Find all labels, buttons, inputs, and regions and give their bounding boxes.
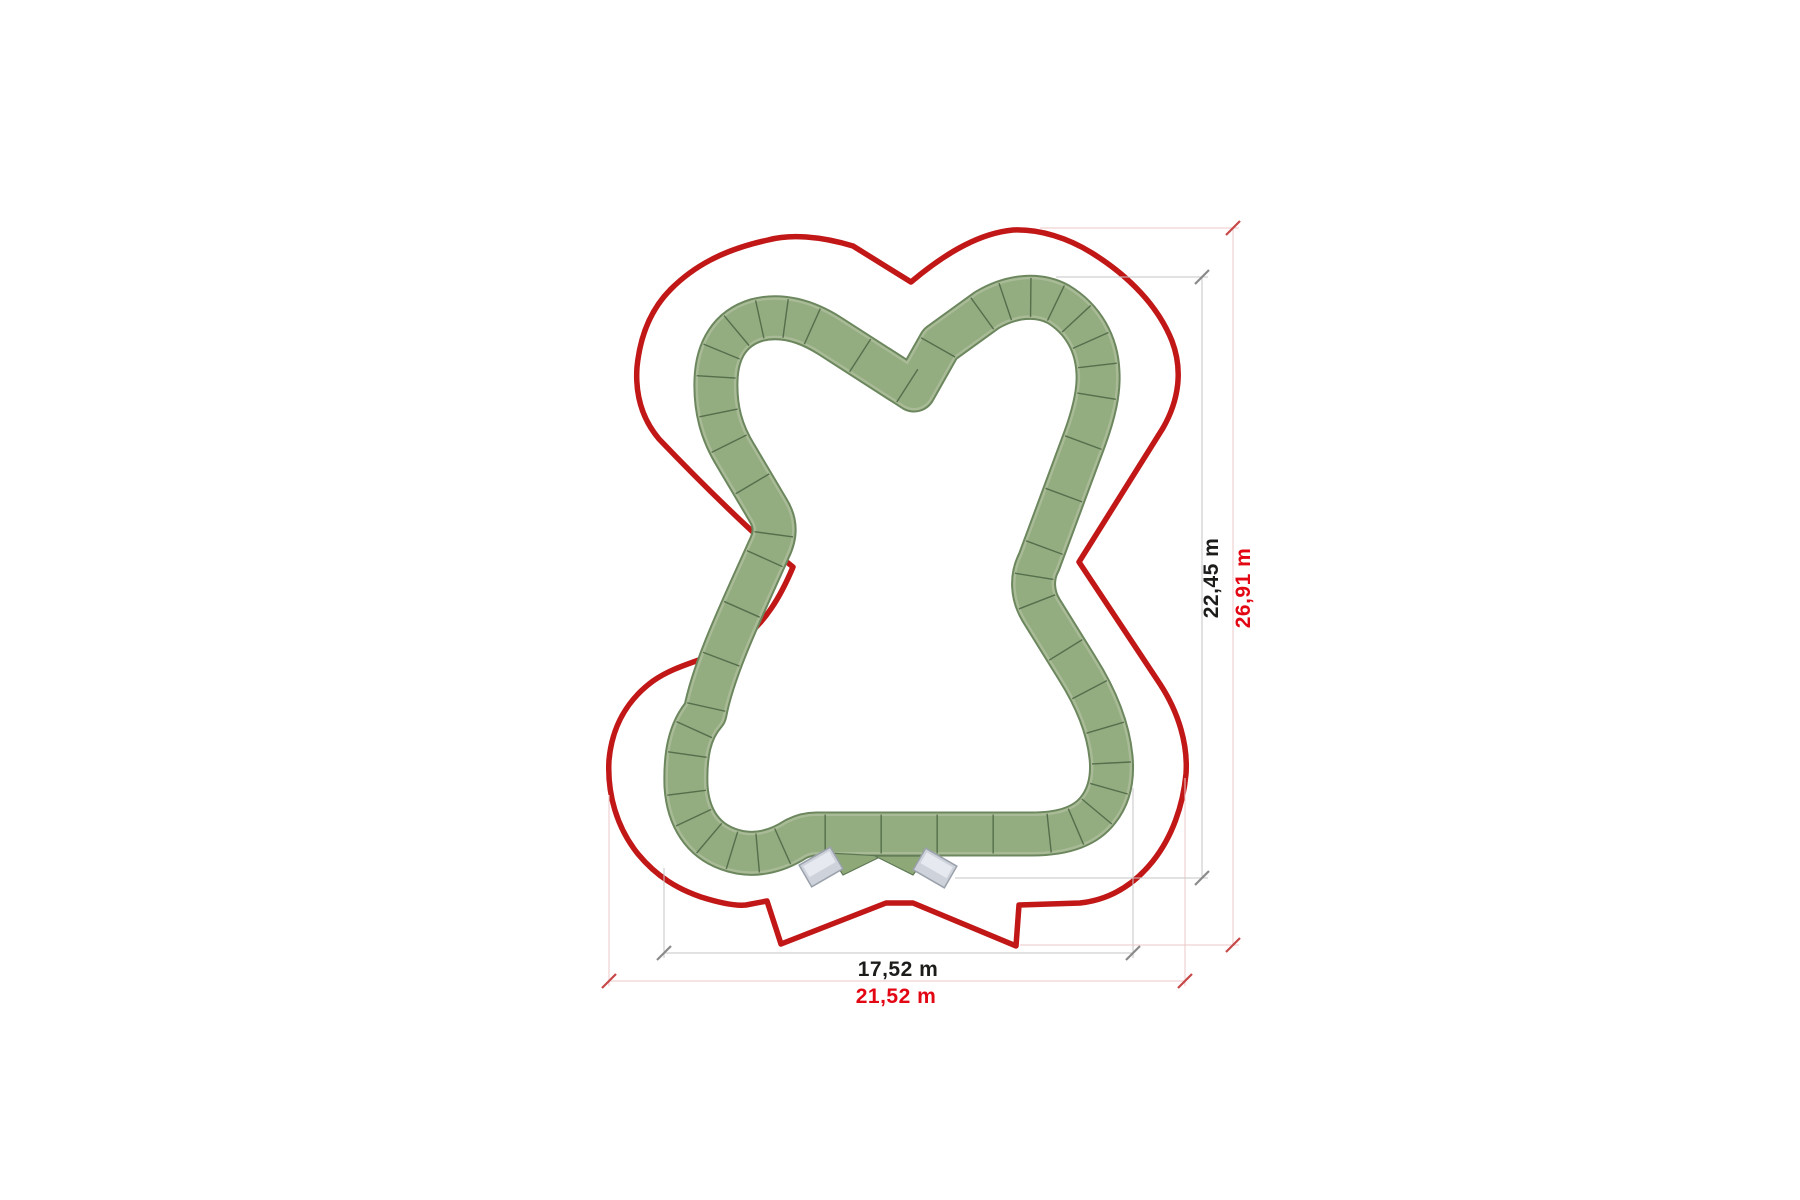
pump-track-plan: 17,52 m 21,52 m 22,45 m 26,91 m (0, 0, 1800, 1200)
plan-svg: 17,52 m 21,52 m 22,45 m 26,91 m (0, 0, 1800, 1200)
dim-label-track-height: 22,45 m (1200, 538, 1223, 619)
track-band-surface (686, 297, 1112, 853)
dim-label-site-height: 26,91 m (1232, 548, 1255, 629)
dim-label-site-width: 21,52 m (856, 985, 937, 1008)
track-band (667, 278, 1131, 873)
dim-label-track-width: 17,52 m (858, 958, 939, 981)
